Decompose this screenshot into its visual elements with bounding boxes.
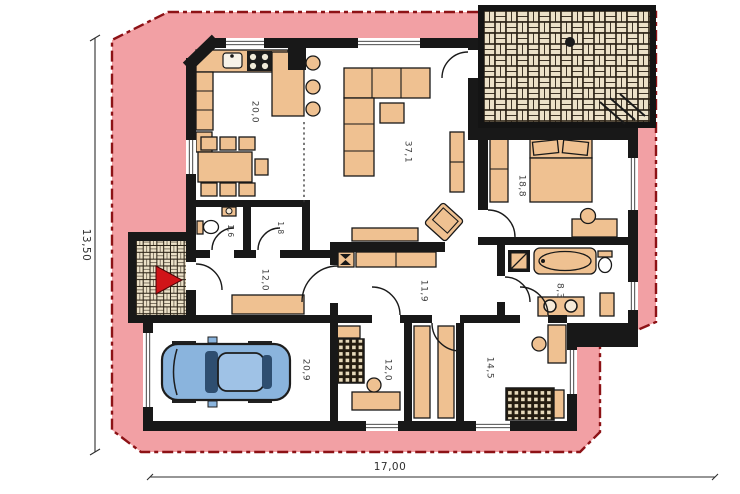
double-bed xyxy=(530,158,592,202)
window xyxy=(226,38,264,48)
room-label-corridor: 11,9 xyxy=(419,280,429,302)
room-label-living: 37,1 xyxy=(403,141,413,163)
bar-stool xyxy=(306,80,320,94)
car xyxy=(162,337,290,407)
toilet xyxy=(204,221,219,234)
hall-sideboard xyxy=(232,295,304,314)
window xyxy=(366,421,398,431)
sideboard xyxy=(352,228,418,241)
window xyxy=(358,38,420,48)
window xyxy=(628,158,638,210)
bar-stool xyxy=(306,102,320,116)
chair xyxy=(367,378,381,392)
patio-detail xyxy=(565,37,575,47)
dining-chair xyxy=(239,183,255,196)
mirror xyxy=(208,401,217,407)
dining-chair xyxy=(220,137,236,150)
closet xyxy=(438,326,454,418)
dining-chair xyxy=(201,137,217,150)
toilet-tank xyxy=(598,251,612,257)
faucet xyxy=(230,54,234,58)
room-label-bedroom2: 12,0 xyxy=(383,359,393,381)
dining-chair xyxy=(239,137,255,150)
room-label-bedroom1: 18,8 xyxy=(517,175,527,197)
sofa xyxy=(344,68,430,98)
window xyxy=(567,350,577,394)
pillow xyxy=(532,140,558,156)
pillow xyxy=(562,140,588,156)
dimension-bottom: 17,00 xyxy=(147,461,718,480)
patio-paving xyxy=(481,8,653,125)
dining-chair xyxy=(255,159,268,175)
pillow xyxy=(554,390,564,418)
entry-porch xyxy=(136,241,186,315)
garage-door xyxy=(143,333,153,407)
toilet xyxy=(599,258,612,273)
window xyxy=(186,140,196,174)
bedroom-door-gap xyxy=(478,210,488,237)
dining-chair xyxy=(220,183,236,196)
chair xyxy=(532,337,546,351)
dining-table xyxy=(198,152,252,182)
floor-plan-page: 20,0 37,1 18,8 1,6 1,8 12,0 11,9 8,3 20,… xyxy=(0,0,740,494)
terrace-door-gap xyxy=(468,50,478,78)
floor-plan-canvas: 20,0 37,1 18,8 1,6 1,8 12,0 11,9 8,3 20,… xyxy=(0,0,740,494)
windshield xyxy=(205,351,218,393)
single-bed xyxy=(506,388,554,420)
bathroom-door-gap xyxy=(497,276,505,302)
desk xyxy=(352,392,400,410)
dining-chair xyxy=(201,183,217,196)
window xyxy=(628,282,638,310)
bar-stool xyxy=(306,56,320,70)
window xyxy=(476,421,510,431)
pillow xyxy=(336,326,360,338)
dimension-left: 13,50 xyxy=(80,35,100,455)
room-label-bathroom: 8,3 xyxy=(555,283,565,299)
room-label-bedroom3: 14,5 xyxy=(485,357,495,379)
sofa xyxy=(344,98,374,176)
front-door-gap xyxy=(186,262,196,290)
bath-cabinet xyxy=(600,293,614,316)
kitchen-cabinet-column xyxy=(196,72,213,130)
room-label-pantry: 1,8 xyxy=(276,221,285,234)
room-label-garage: 20,9 xyxy=(301,359,311,381)
desk xyxy=(548,325,566,363)
room-label-hall: 12,0 xyxy=(260,269,270,291)
mirror xyxy=(208,337,217,343)
room-label-wc: 1,6 xyxy=(226,224,235,237)
dimension-label-horizontal: 17,00 xyxy=(374,461,407,473)
single-bed xyxy=(336,339,364,383)
toilet-tank xyxy=(197,221,203,234)
coffee-table xyxy=(380,103,404,123)
room-label-kitchen: 20,0 xyxy=(250,101,260,123)
terrace-patio xyxy=(481,8,653,125)
desk xyxy=(572,219,617,237)
rear-window xyxy=(262,355,272,389)
chair xyxy=(581,209,596,224)
car-roof xyxy=(218,353,264,391)
corridor-furniture xyxy=(338,252,436,267)
closet xyxy=(414,326,430,418)
dimension-label-vertical: 13,50 xyxy=(80,229,92,262)
